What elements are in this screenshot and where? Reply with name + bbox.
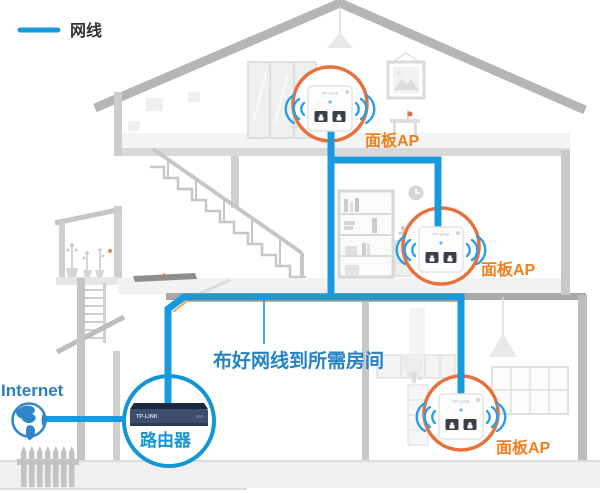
wall-decor <box>188 92 200 102</box>
potted-plants <box>66 243 112 277</box>
ground-floor-right-wall <box>578 295 587 467</box>
stair-wall <box>231 156 239 208</box>
ground <box>0 461 600 488</box>
staircase <box>150 149 306 278</box>
stair-railing <box>153 149 302 253</box>
home-network-diagram: TP-LINK <box>0 0 600 493</box>
pendant-lamp <box>327 32 353 48</box>
router-brand-text: TP-LINK <box>136 414 158 420</box>
ap-middle-label: 面板AP <box>481 260 536 279</box>
balcony <box>55 206 124 352</box>
range-hood <box>403 354 423 372</box>
balcony-roof <box>55 209 122 223</box>
ap-bottom-label: 面板AP <box>496 438 551 457</box>
wall-clock <box>409 186 424 201</box>
wall-decor <box>146 98 163 111</box>
fence <box>17 446 79 487</box>
pendant-lamp <box>489 333 517 357</box>
internet-globe-icon <box>13 404 46 441</box>
exterior-ladder <box>57 283 124 352</box>
wall-decor <box>128 121 140 131</box>
router-label: 路由器 <box>140 430 192 450</box>
picture-frame <box>388 53 424 98</box>
router-device: TP-LINK <box>130 403 208 426</box>
second-floor-right-wall <box>561 150 570 295</box>
cable-note-label: 布好网线到所需房间 <box>213 349 384 372</box>
ground-floor-left-wall <box>77 278 85 488</box>
legend-label: 网线 <box>70 21 102 40</box>
kitchen-cabinets <box>377 308 455 379</box>
ap-top-label: 面板AP <box>365 131 420 150</box>
internet-label: Internet <box>1 381 64 400</box>
interior-wall <box>362 300 369 461</box>
table-lamp <box>408 112 413 117</box>
bookshelf <box>339 191 393 277</box>
second-floor <box>118 278 570 294</box>
attic-left-wall <box>114 92 122 156</box>
